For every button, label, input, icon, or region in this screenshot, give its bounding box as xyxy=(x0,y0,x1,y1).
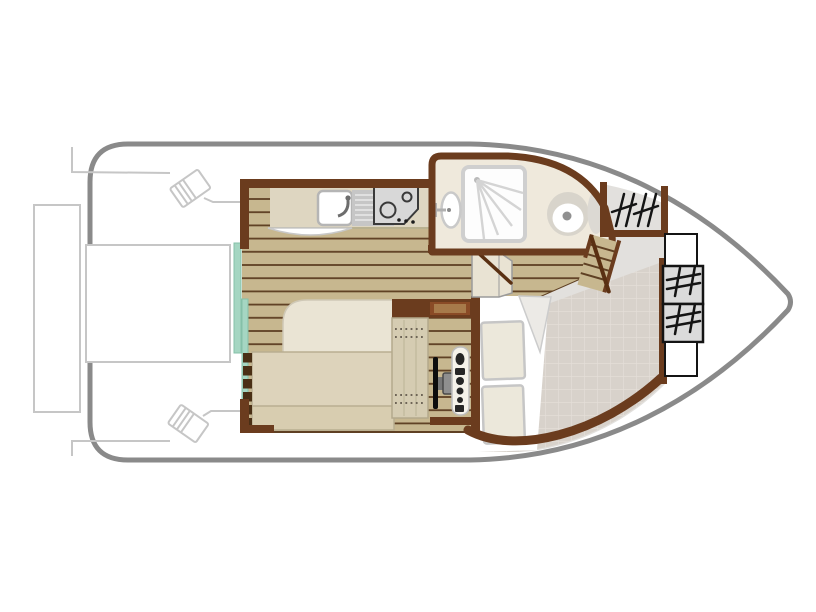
wall-bow-hatch-bottom xyxy=(600,230,668,237)
aft-door-pane-top xyxy=(234,243,241,353)
helm-console xyxy=(452,347,469,415)
hob-knob-3 xyxy=(411,220,415,224)
hob-knob-1 xyxy=(397,218,401,222)
wall-bow-hatch-right xyxy=(661,186,668,236)
helm-cabinet-panel-inner xyxy=(434,304,466,313)
stern-locker-center xyxy=(86,245,230,362)
stern-locker-left xyxy=(34,205,80,412)
bow-step-box-bottom xyxy=(665,342,697,376)
wall-bow-hatch-left xyxy=(600,182,607,236)
hob-knob-2 xyxy=(404,219,408,223)
bow-seat-locker-2 xyxy=(663,304,703,342)
toilet xyxy=(547,192,589,236)
wall-under-helm xyxy=(430,417,476,425)
bed-head-duvet xyxy=(283,300,393,358)
shower xyxy=(463,167,525,241)
bow-door-leaf xyxy=(472,252,512,297)
bow-seat-locker-1 xyxy=(663,266,703,304)
wall-aft-corner xyxy=(240,425,274,433)
galley xyxy=(268,186,432,235)
bow-door xyxy=(472,249,512,297)
cockpit-cushion-top xyxy=(481,321,525,379)
wall-front-lower xyxy=(471,296,480,432)
floorplan-stage xyxy=(0,0,816,612)
wall-aft-upper xyxy=(240,179,249,249)
bow-step-box-top xyxy=(665,234,697,266)
bed-mattress xyxy=(252,352,394,408)
boat-floorplan xyxy=(0,0,816,612)
wall-galley-top xyxy=(240,179,436,188)
helm-seat xyxy=(392,318,428,418)
